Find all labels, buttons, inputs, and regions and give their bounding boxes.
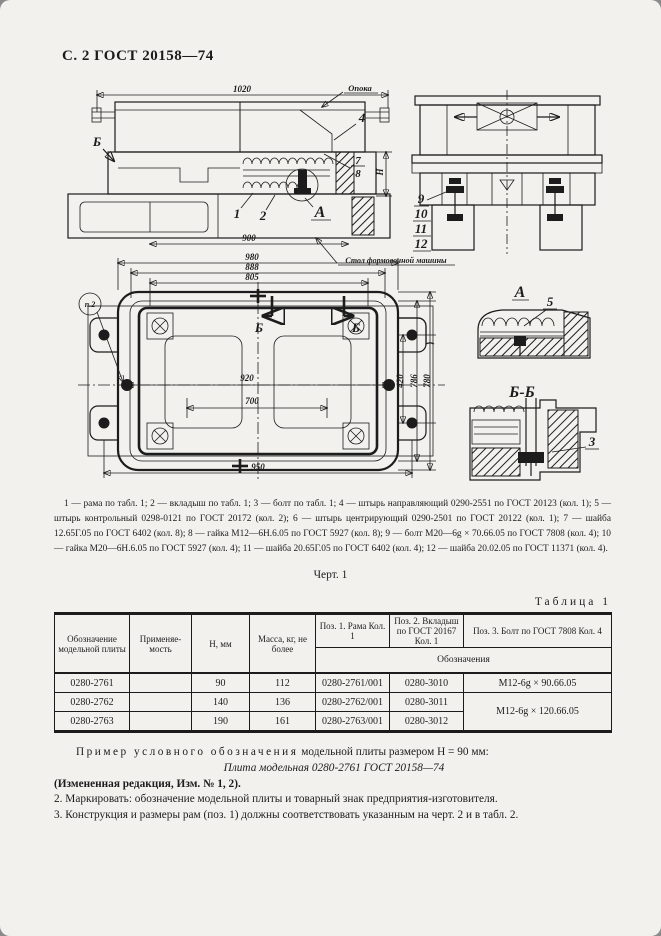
- detail-a-title: А: [514, 284, 526, 301]
- cell-mass: 136: [250, 693, 316, 712]
- machine-table-note: Стол формовочной машины: [345, 256, 447, 265]
- example-rest-text: модельной плиты размером Н = 90 мм:: [301, 746, 489, 758]
- col-header-mass: Масса, кг, не более: [250, 614, 316, 674]
- plan-view: Стол формовочной машины 980 888 805: [78, 238, 455, 480]
- cell-h: 90: [192, 673, 250, 693]
- item-p2-label: п.2: [85, 300, 95, 309]
- dim-950: 950: [251, 462, 265, 472]
- part-1-label: 1: [234, 206, 241, 221]
- part-11-label: 11: [415, 221, 427, 236]
- section-b-left-label: Б: [254, 320, 263, 335]
- designation-example-value: Плита модельная 0280-2761 ГОСТ 20158—74: [54, 761, 614, 777]
- part-12-label: 12: [415, 236, 429, 251]
- col-header-pos3: Поз. 3. Болт по ГОСТ 7808 Кол. 4: [464, 614, 612, 648]
- dim-786: 786: [409, 374, 419, 388]
- part-5-label: 5: [547, 294, 554, 309]
- model-plate-table: Обозначение модельной плиты Применяе­мос…: [54, 612, 612, 733]
- part-3-label: 3: [588, 434, 596, 449]
- col-header-applicability: Применяе­мость: [130, 614, 192, 674]
- table-1: Обозначение модельной плиты Применяе­мос…: [54, 612, 611, 733]
- cell-pos3: М12-6g × 90.66.05: [464, 673, 612, 693]
- detail-a-ref-label: А: [314, 204, 326, 221]
- side-section-view: 1020: [68, 83, 392, 244]
- col-header-h: Н, мм: [192, 614, 250, 674]
- cell-designation: 0280-2763: [55, 712, 130, 732]
- designation-example-intro: Пример условного обозначения модельной п…: [54, 745, 614, 761]
- cell-pos3: М12-6g × 120.66.05: [464, 693, 612, 732]
- part-2-label: 2: [259, 208, 267, 223]
- figure-caption: Черт. 1: [0, 569, 661, 581]
- cell-mass: 112: [250, 673, 316, 693]
- cell-applicability: [130, 673, 192, 693]
- section-b-right-label: Б: [351, 320, 360, 335]
- cell-pos2: 0280-3011: [390, 693, 464, 712]
- dim-700: 700: [245, 396, 259, 406]
- cell-pos2: 0280-3010: [390, 673, 464, 693]
- end-view: 9 10 11 12: [412, 90, 602, 254]
- dim-888: 888: [245, 262, 259, 272]
- part-7-label: 7: [355, 155, 361, 167]
- bolt-left: [446, 178, 464, 221]
- notes-block: Пример условного обозначения модельной п…: [54, 745, 614, 824]
- note-3: 3. Конструкция и размеры рам (поз. 1) до…: [54, 808, 614, 824]
- detail-bb-title: Б-Б: [508, 384, 535, 401]
- cell-pos1: 0280-2763/001: [316, 712, 390, 732]
- note-2: 2. Маркировать: обозначение модельной пл…: [54, 792, 614, 808]
- part-10-label: 10: [415, 206, 429, 221]
- view-b-label: Б: [92, 134, 101, 149]
- opoka-label: Опока: [348, 83, 372, 93]
- col-header-pos1: Поз. 1. Рама Кол. 1: [316, 614, 390, 648]
- cell-h: 140: [192, 693, 250, 712]
- cell-mass: 161: [250, 712, 316, 732]
- table-row: 0280-2762 140 136 0280-2762/001 0280-301…: [55, 693, 612, 712]
- dim-980: 980: [245, 252, 259, 262]
- cell-designation: 0280-2762: [55, 693, 130, 712]
- cell-pos1: 0280-2762/001: [316, 693, 390, 712]
- col-header-pos2: Поз. 2. Вкладыш по ГОСТ 20167 Кол. 1: [390, 614, 464, 648]
- dim-805: 805: [245, 272, 259, 282]
- cell-h: 190: [192, 712, 250, 732]
- document-page: С. 2 ГОСТ 20158—74 1020: [0, 0, 661, 936]
- dim-900: 900: [242, 233, 256, 243]
- dim-920: 920: [240, 373, 254, 383]
- part-8-label: 8: [355, 168, 361, 180]
- parts-list-caption: 1 — рама по табл. 1; 2 — вкладыш по табл…: [54, 497, 611, 556]
- dim-420: 420: [395, 374, 405, 389]
- cell-applicability: [130, 693, 192, 712]
- col-header-designation: Обозначение модельной плиты: [55, 614, 130, 674]
- table-title: Таблица 1: [0, 596, 611, 608]
- detail-a-view: А 5: [478, 284, 590, 358]
- revision-note: (Измененная редакция, Изм. № 1, 2).: [54, 777, 614, 793]
- dim-h: Н: [375, 168, 385, 177]
- cell-designation: 0280-2761: [55, 673, 130, 693]
- table-row: 0280-2761 90 112 0280-2761/001 0280-3010…: [55, 673, 612, 693]
- cell-pos2: 0280-3012: [390, 712, 464, 732]
- example-spaced-text: Пример условного обозначения: [76, 746, 298, 758]
- part-9-label: 9: [418, 191, 425, 206]
- cell-pos1: 0280-2761/001: [316, 673, 390, 693]
- part-4-label: 4: [358, 110, 366, 125]
- clamping-ears: [90, 318, 434, 440]
- detail-bb-view: Б-Б 3: [470, 384, 599, 480]
- dim-1020: 1020: [233, 84, 252, 94]
- subheader-designations: Обозначения: [316, 648, 612, 674]
- bolt-right: [546, 178, 564, 221]
- cell-applicability: [130, 712, 192, 732]
- dim-780: 780: [422, 374, 432, 388]
